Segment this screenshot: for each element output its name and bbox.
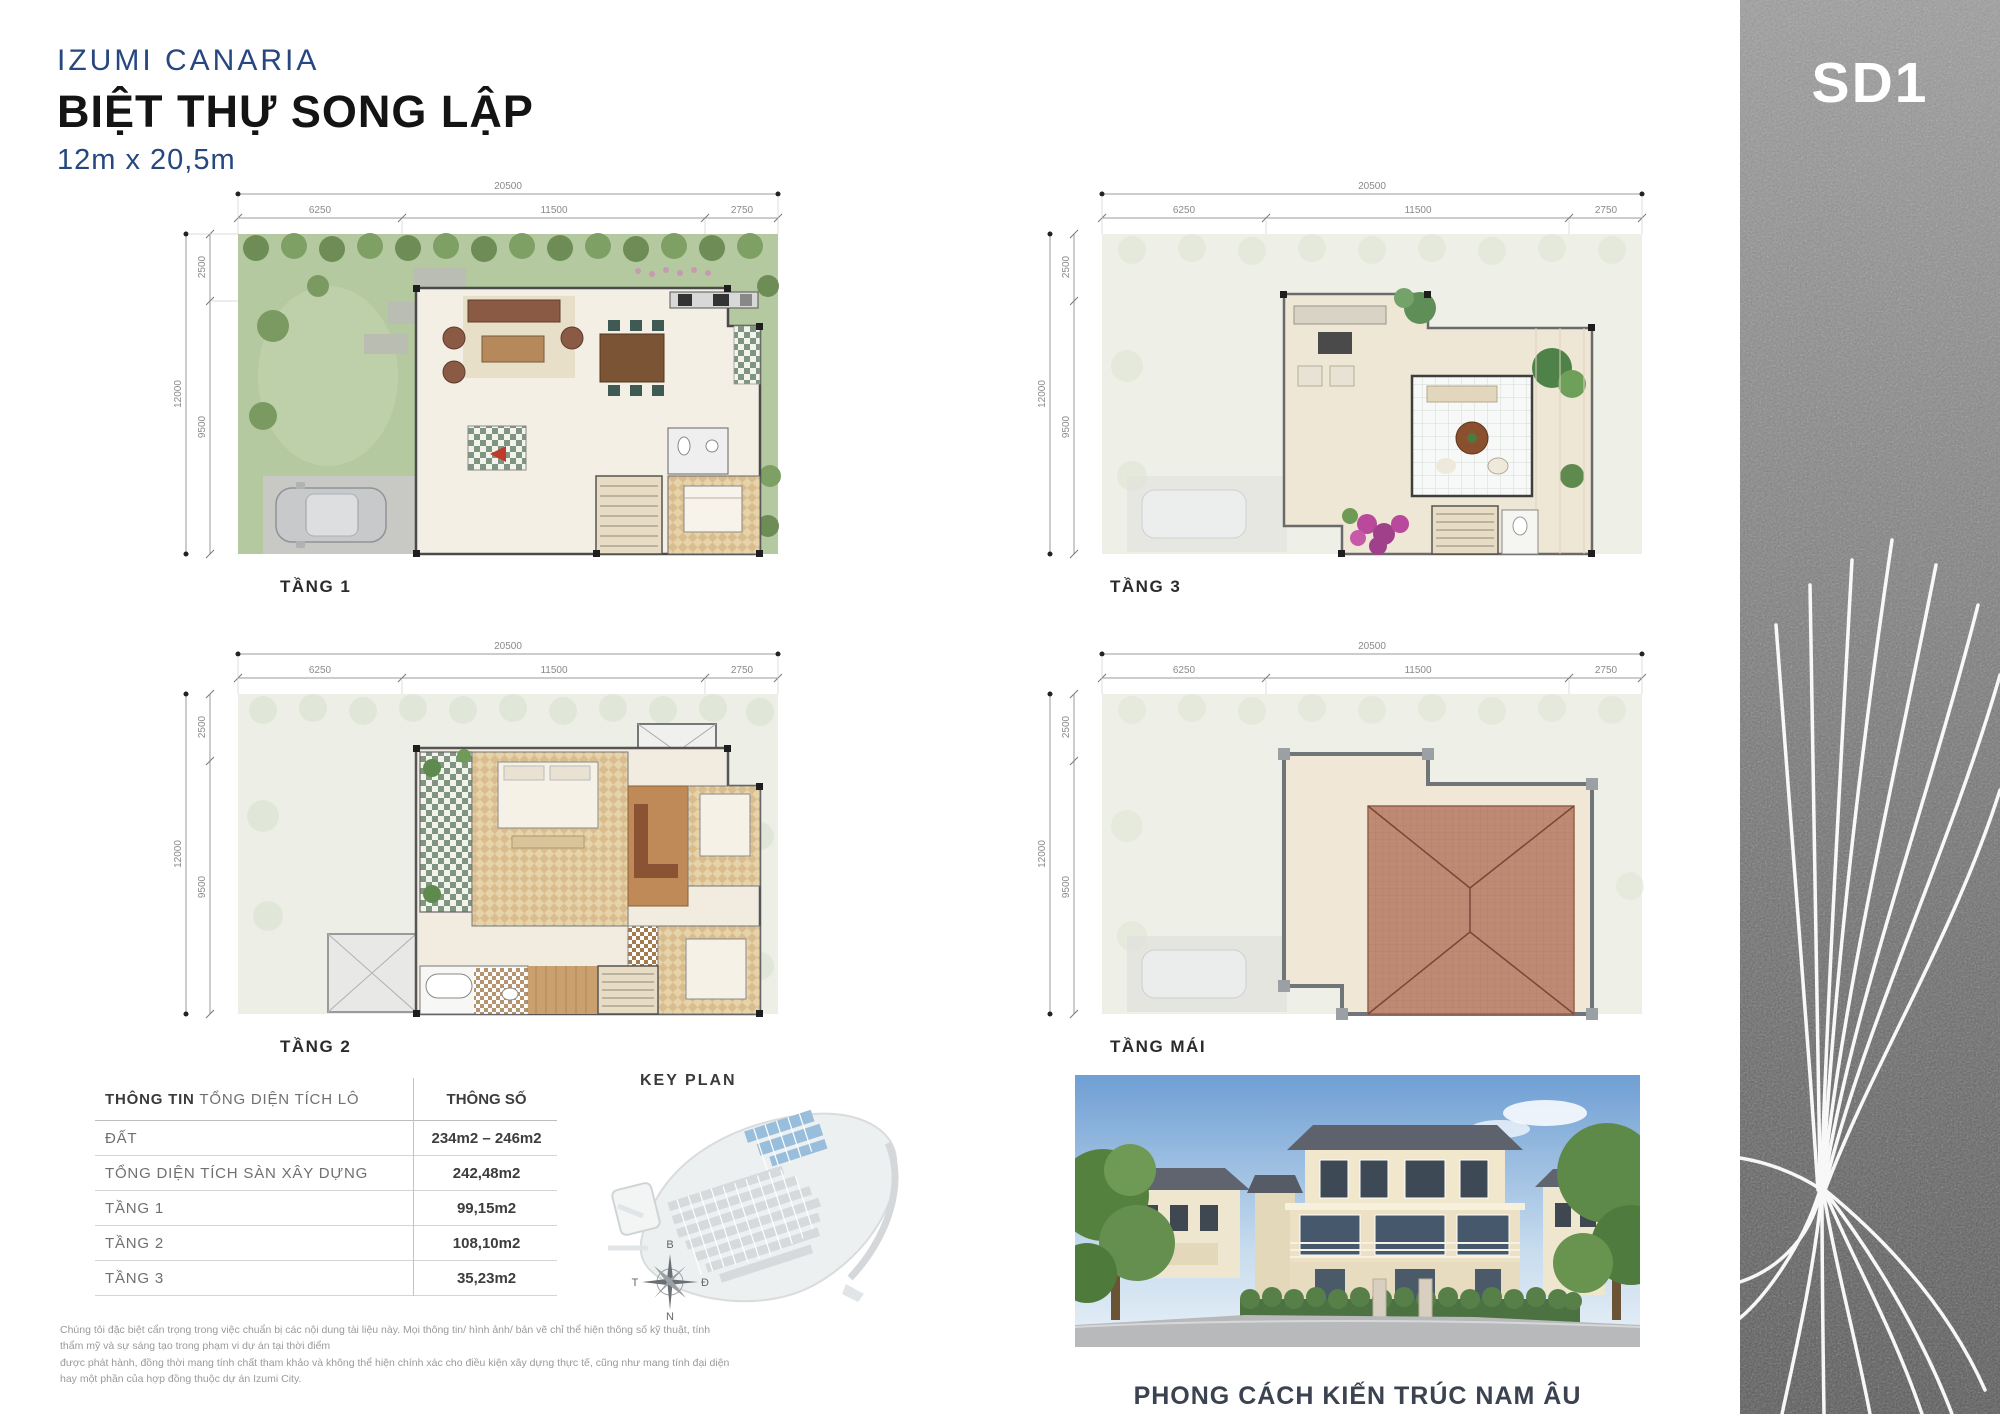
disclaimer-line2: được phát hành, đồng thời mang tính chất… — [60, 1355, 730, 1388]
table-row: TỔNG DIỆN TÍCH SÀN XÂY DỰNG 242,48m2 — [95, 1156, 557, 1191]
floorplan-level3: 20500 6250 11500 2750 12000 2500 9500 — [1032, 176, 1652, 597]
svg-text:6250: 6250 — [1173, 205, 1196, 216]
svg-text:6250: 6250 — [1173, 665, 1196, 676]
svg-text:20500: 20500 — [494, 641, 522, 652]
table-header-info: THÔNG TIN — [105, 1091, 195, 1108]
floorplan-level3-drawing: 20500 6250 11500 2750 12000 2500 9500 — [1032, 176, 1652, 566]
hip-roof — [1368, 806, 1574, 1014]
table-row: TẦNG 2 108,10m2 — [95, 1226, 557, 1261]
stairs — [596, 476, 662, 554]
table-header-row: THÔNG TIN TỔNG DIỆN TÍCH LÔ THÔNG SỐ — [95, 1078, 557, 1121]
armchair — [561, 327, 583, 349]
car-faded — [1142, 950, 1246, 998]
floor2-label: TẦNG 2 — [280, 1037, 788, 1057]
bed-2 — [700, 794, 750, 856]
desk — [1427, 386, 1497, 402]
floor3-label: TẦNG 3 — [1110, 577, 1652, 597]
house-level1 — [413, 285, 763, 557]
sofa — [468, 300, 560, 322]
area-info-table: THÔNG TIN TỔNG DIỆN TÍCH LÔ THÔNG SỐ ĐẤT… — [95, 1078, 557, 1296]
entry-porch — [468, 426, 526, 470]
svg-text:2500: 2500 — [197, 255, 208, 278]
svg-text:2500: 2500 — [197, 715, 208, 738]
svg-text:12000: 12000 — [173, 380, 184, 408]
svg-text:9500: 9500 — [1061, 415, 1072, 438]
page-title: BIỆT THỰ SONG LẬP — [57, 86, 534, 138]
armchair — [443, 361, 465, 383]
svg-text:11500: 11500 — [540, 205, 568, 216]
table-row: TẦNG 3 35,23m2 — [95, 1261, 557, 1296]
svg-text:2750: 2750 — [731, 665, 754, 676]
svg-text:11500: 11500 — [540, 665, 568, 676]
site-arrow — [842, 1284, 864, 1302]
compass-rose: B N T Đ — [628, 1238, 712, 1322]
bathroom — [668, 428, 728, 474]
floorplan-level1: 20500 6250 11500 2750 12000 2500 9500 — [168, 176, 788, 597]
table-header-info-rest: TỔNG DIỆN TÍCH LÔ — [195, 1091, 360, 1108]
table-divider — [413, 1078, 414, 1296]
bench — [512, 836, 584, 848]
floorplan-level2-drawing: 20500 6250 11500 2750 12000 2500 9500 — [168, 636, 788, 1026]
outdoor-counter — [1294, 306, 1386, 324]
disclaimer: Chúng tôi đặc biệt cẩn trọng trong việc … — [60, 1322, 730, 1387]
svg-text:11500: 11500 — [1404, 665, 1432, 676]
svg-text:2750: 2750 — [731, 205, 754, 216]
svg-text:6250: 6250 — [309, 205, 332, 216]
bed — [684, 486, 742, 532]
svg-text:2500: 2500 — [1061, 715, 1072, 738]
svg-text:20500: 20500 — [1358, 641, 1386, 652]
table-row: ĐẤT 234m2 – 246m2 — [95, 1121, 557, 1156]
project-name: IZUMI CANARIA — [57, 44, 534, 78]
unit-code: SD1 — [1740, 50, 2000, 116]
table-header-value: THÔNG SỐ — [416, 1091, 557, 1108]
svg-text:6250: 6250 — [309, 665, 332, 676]
roof-terrace — [1278, 748, 1598, 1020]
grill — [1318, 332, 1352, 354]
wc — [628, 926, 658, 968]
svg-text:20500: 20500 — [1358, 181, 1386, 192]
armchair — [443, 327, 465, 349]
compass-south: N — [666, 1311, 674, 1322]
svg-text:12000: 12000 — [173, 840, 184, 868]
sidebar-texture — [1740, 0, 2000, 1414]
floorplan-level1-drawing: 20500 6250 11500 2750 12000 2500 9500 — [168, 176, 788, 566]
svg-text:2750: 2750 — [1595, 205, 1618, 216]
coffee-table — [482, 336, 544, 362]
villa-caption: PHONG CÁCH KIẾN TRÚC NAM ÂU — [1075, 1382, 1640, 1411]
floorplan-roof-drawing: 20500 6250 11500 2750 12000 2500 9500 — [1032, 636, 1652, 1026]
bathtub — [426, 974, 472, 998]
table-row: TẦNG 1 99,15m2 — [95, 1191, 557, 1226]
dining-table — [600, 334, 664, 382]
brochure-page: IZUMI CANARIA BIỆT THỰ SONG LẬP 12m x 20… — [0, 0, 2000, 1414]
header: IZUMI CANARIA BIỆT THỰ SONG LẬP 12m x 20… — [57, 44, 534, 177]
svg-text:2500: 2500 — [1061, 255, 1072, 278]
lot-size: 12m x 20,5m — [57, 144, 534, 177]
floorplan-level2: 20500 6250 11500 2750 12000 2500 9500 — [168, 636, 788, 1057]
corridor — [528, 966, 598, 1014]
disclaimer-line1: Chúng tôi đặc biệt cẩn trọng trong việc … — [60, 1322, 730, 1355]
rooftop-terrace — [1280, 288, 1595, 557]
car-topview — [276, 482, 386, 548]
svg-text:9500: 9500 — [1061, 875, 1072, 898]
svg-text:20500: 20500 — [494, 181, 522, 192]
compass-east: Đ — [701, 1277, 709, 1289]
car-faded — [1142, 490, 1246, 538]
bed-3 — [686, 939, 746, 999]
svg-text:12000: 12000 — [1037, 380, 1048, 408]
svg-text:9500: 9500 — [197, 415, 208, 438]
floor1-label: TẦNG 1 — [280, 577, 788, 597]
sidebar: SD1 — [1740, 0, 2000, 1414]
svg-text:11500: 11500 — [1404, 205, 1432, 216]
compass-west: T — [632, 1277, 639, 1289]
kitchen-tile — [734, 326, 760, 384]
floorplan-roof: 20500 6250 11500 2750 12000 2500 9500 — [1032, 636, 1652, 1057]
amenity-block — [611, 1182, 661, 1236]
villa-render — [1075, 1075, 1640, 1347]
compass-north: B — [666, 1239, 673, 1251]
svg-text:9500: 9500 — [197, 875, 208, 898]
svg-text:2750: 2750 — [1595, 665, 1618, 676]
svg-text:12000: 12000 — [1037, 840, 1048, 868]
roof-label: TẦNG MÁI — [1110, 1037, 1652, 1057]
